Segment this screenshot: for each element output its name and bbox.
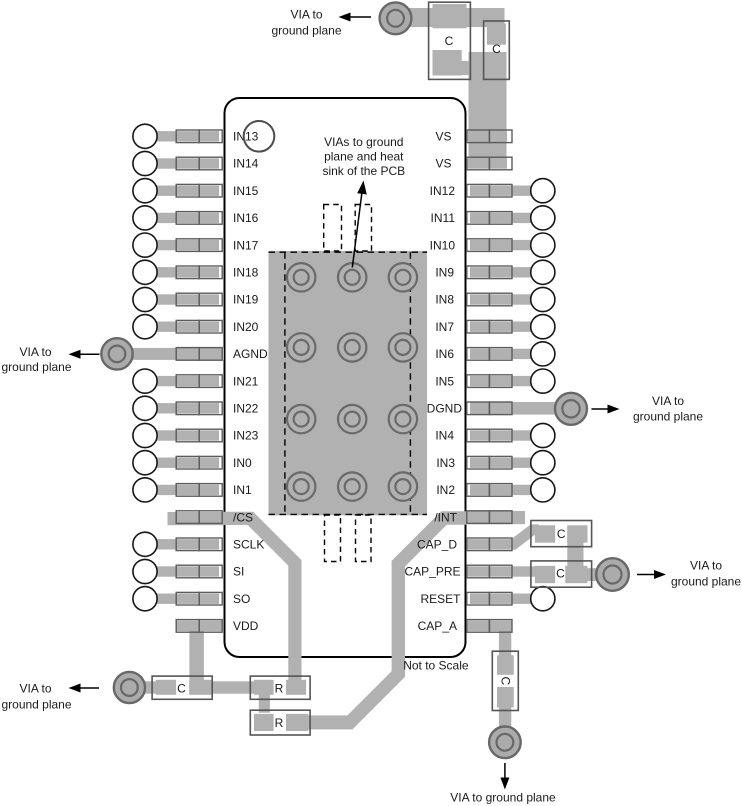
- svg-text:ground plane: ground plane: [1, 697, 71, 711]
- svg-text:VIA to: VIA to: [690, 559, 722, 573]
- svg-text:SI: SI: [233, 565, 244, 579]
- svg-text:VIA to: VIA to: [290, 8, 322, 22]
- svg-text:IN22: IN22: [233, 402, 259, 416]
- svg-text:plane and heat: plane and heat: [324, 150, 404, 164]
- svg-text:VDD: VDD: [233, 619, 259, 633]
- svg-text:IN14: IN14: [233, 157, 259, 171]
- svg-text:IN23: IN23: [233, 429, 259, 443]
- svg-text:IN0: IN0: [233, 456, 252, 470]
- svg-text:VIA to: VIA to: [19, 345, 51, 359]
- svg-text:IN2: IN2: [436, 483, 455, 497]
- svg-text:VIAs to ground: VIAs to ground: [324, 135, 403, 149]
- svg-text:ground plane: ground plane: [671, 575, 741, 589]
- svg-text:IN7: IN7: [435, 320, 454, 334]
- svg-text:IN10: IN10: [430, 238, 456, 252]
- svg-text:C: C: [557, 527, 566, 541]
- svg-text:DGND: DGND: [427, 402, 463, 416]
- svg-text:SO: SO: [233, 592, 250, 606]
- svg-text:CAP_D: CAP_D: [417, 538, 457, 552]
- svg-text:IN15: IN15: [233, 184, 259, 198]
- svg-text:IN3: IN3: [436, 456, 455, 470]
- svg-text:IN20: IN20: [233, 320, 259, 334]
- svg-text:sink of the PCB: sink of the PCB: [322, 164, 405, 178]
- svg-text:IN18: IN18: [233, 266, 259, 280]
- svg-text:IN13: IN13: [233, 130, 259, 144]
- svg-text:R: R: [275, 716, 284, 730]
- svg-text:IN4: IN4: [435, 429, 454, 443]
- svg-text:CAP_PRE: CAP_PRE: [404, 565, 460, 579]
- svg-text:C: C: [492, 42, 501, 56]
- svg-text:IN5: IN5: [435, 374, 454, 388]
- svg-text:C: C: [498, 677, 512, 686]
- svg-text:ground plane: ground plane: [633, 410, 703, 424]
- svg-text:VIA to ground plane: VIA to ground plane: [450, 791, 556, 805]
- svg-text:R: R: [275, 682, 284, 696]
- svg-text:IN12: IN12: [430, 184, 456, 198]
- svg-text:CAP_A: CAP_A: [418, 619, 457, 633]
- svg-text:C: C: [177, 682, 186, 696]
- svg-text:VS: VS: [435, 130, 451, 144]
- svg-text:C: C: [445, 34, 454, 48]
- svg-text:IN21: IN21: [233, 374, 259, 388]
- svg-text:ground plane: ground plane: [271, 24, 341, 38]
- svg-text:VIA to: VIA to: [652, 394, 684, 408]
- svg-text:/CS: /CS: [233, 510, 253, 524]
- svg-text:/INT: /INT: [434, 510, 457, 524]
- svg-text:SCLK: SCLK: [233, 538, 264, 552]
- svg-text:IN1: IN1: [233, 483, 252, 497]
- svg-text:VS: VS: [435, 157, 451, 171]
- svg-text:IN19: IN19: [233, 293, 259, 307]
- svg-text:Not to Scale: Not to Scale: [403, 659, 469, 673]
- svg-text:AGND: AGND: [233, 347, 268, 361]
- svg-text:IN8: IN8: [435, 293, 454, 307]
- svg-text:C: C: [556, 566, 565, 580]
- svg-text:IN6: IN6: [435, 347, 454, 361]
- svg-text:IN16: IN16: [233, 211, 259, 225]
- svg-text:IN11: IN11: [431, 211, 456, 225]
- svg-text:IN9: IN9: [435, 266, 454, 280]
- svg-text:IN17: IN17: [233, 238, 259, 252]
- svg-text:VIA to: VIA to: [19, 681, 51, 695]
- svg-text:RESET: RESET: [420, 592, 461, 606]
- svg-text:ground plane: ground plane: [1, 360, 71, 374]
